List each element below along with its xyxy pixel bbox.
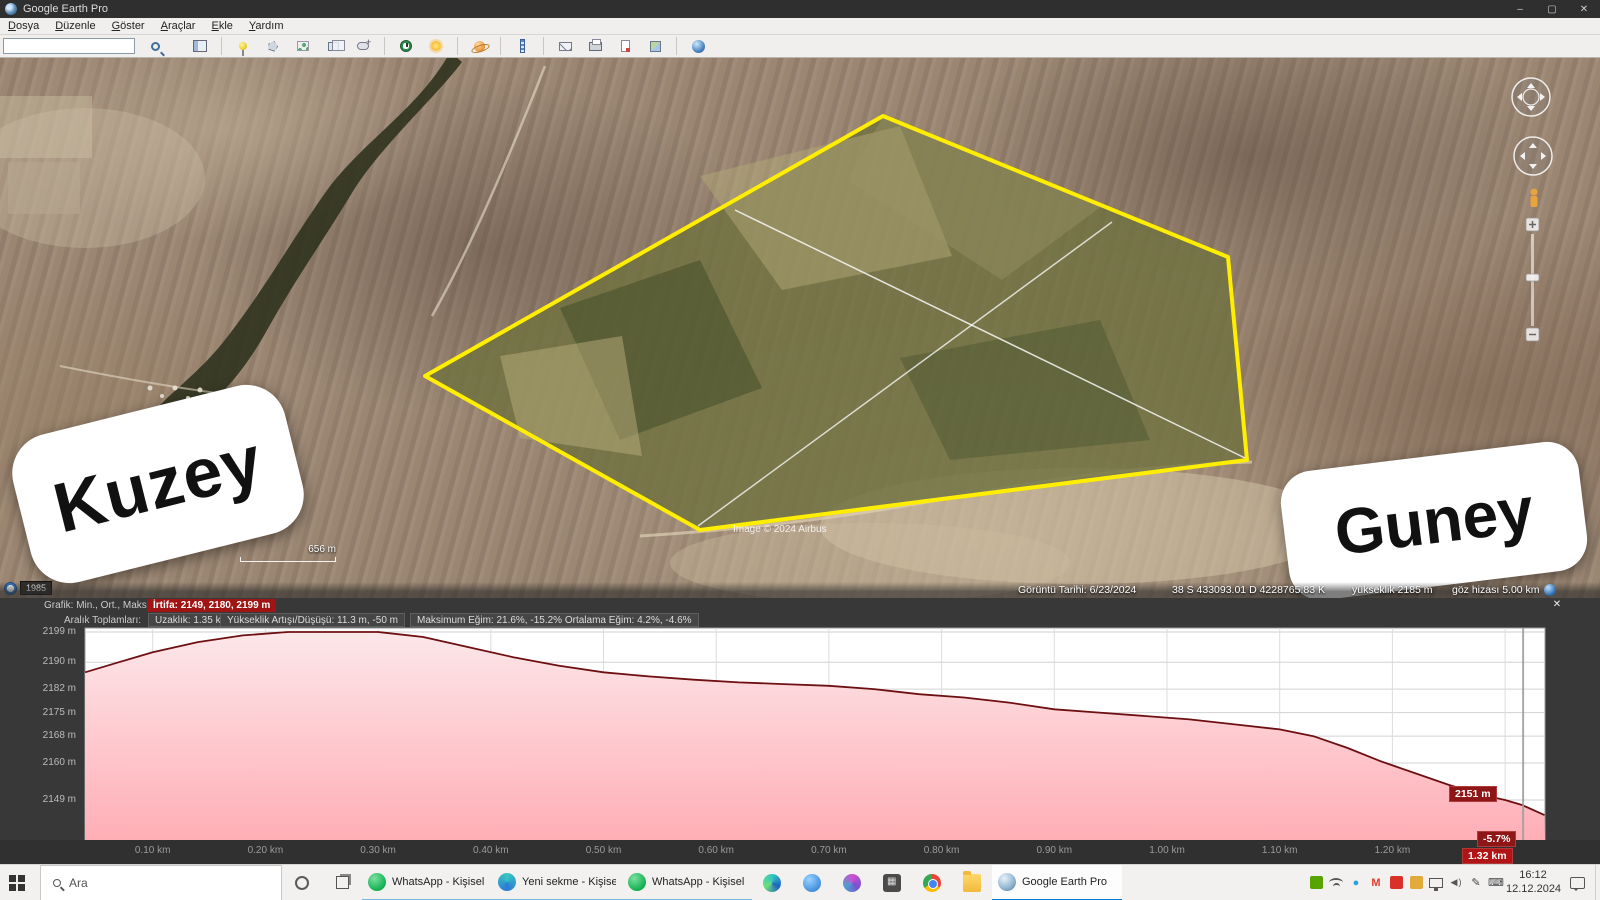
tray-blue-dot-icon[interactable]: ● [1346,865,1366,900]
print-icon [589,42,602,51]
taskbar-search-icon [53,879,61,887]
view-in-google-maps-button[interactable] [642,37,668,56]
menu-item-ekle[interactable]: Ekle [203,19,240,33]
folder-icon [963,874,981,892]
wifi-glyph [1329,878,1343,887]
planets-button[interactable] [466,37,492,56]
tray-wifi-icon[interactable] [1326,865,1346,900]
clock-date: 12.12.2024 [1506,883,1560,897]
eye-altitude: göz hizası 5.00 km [1452,584,1540,596]
window-title: Google Earth Pro [23,3,108,15]
cortana-icon [295,876,309,890]
app-icon [5,3,17,15]
keyboard-glyph: ⌨ [1488,876,1504,889]
taskbar-icon-edge[interactable] [752,865,792,900]
nvidia-glyph [1310,876,1323,889]
x-axis-tick: 0.40 km [461,845,521,856]
y-axis-tick: 2190 m [0,656,76,667]
add-placemark-icon [239,42,247,50]
map-view[interactable]: Image © 2024 Airbus Kuzey Guney 656 m 19… [0,58,1600,598]
card-glyph [1410,876,1423,889]
x-axis-tick: 1.20 km [1362,845,1422,856]
task-view-button[interactable] [322,865,362,900]
coordinates: 38 S 433093.01 D 4228765.83 K [1172,584,1325,596]
record-tour-button[interactable] [350,37,376,56]
taskbar-app-label: WhatsApp - Kişisel ... [652,876,746,888]
display-glyph [1429,878,1443,888]
gmail-glyph: M [1371,877,1380,889]
historical-imagery-button[interactable] [393,37,419,56]
taskbar-app-button[interactable]: WhatsApp - Kişisel ... [622,865,752,900]
y-axis-tick: 2199 m [0,626,76,637]
system-tray: ●M◀✎⌨ 16:12 12.12.2024 [1306,865,1600,900]
add-path-icon [297,41,309,51]
cursor-slope-tooltip: -5.7% [1477,831,1516,847]
profile-close-button[interactable]: ✕ [1549,599,1565,612]
sidebar-button[interactable] [187,37,213,56]
title-bar: Google Earth Pro – ▢ ✕ [0,0,1600,18]
earth-button[interactable] [685,37,711,56]
river-vegetation [152,58,462,430]
y-axis-tick: 2182 m [0,683,76,694]
show-desktop-button[interactable] [1595,865,1600,900]
whatsapp-icon [628,873,646,891]
menu-bar: DosyaDüzenleGösterAraçlarEkleYardım [0,18,1600,35]
taskbar-app-label: Google Earth Pro [1022,876,1107,888]
add-image-overlay-icon [328,42,339,51]
pegman-icon[interactable] [1531,189,1538,208]
cursor-elevation-tooltip: 2151 m [1449,786,1497,802]
taskbar-icon-paint[interactable] [832,865,872,900]
task-view-icon [336,876,349,889]
close-button[interactable]: ✕ [1568,0,1600,18]
blue-icon [803,874,821,892]
menu-item-düzenle[interactable]: Düzenle [47,19,103,33]
zoom-thumb[interactable] [1526,274,1539,281]
search-icon [151,42,160,51]
taskbar-app-button[interactable]: Yeni sekme - Kişisel... [492,865,622,900]
y-axis-tick: 2149 m [0,794,76,805]
search-input[interactable] [3,38,135,54]
menu-item-araçlar[interactable]: Araçlar [153,19,204,33]
earth-icon [692,40,705,53]
tray-volume-icon[interactable]: ◀ [1446,865,1466,900]
nav-controls[interactable] [1512,78,1552,341]
menu-item-yardım[interactable]: Yardım [241,19,292,33]
x-axis-tick: 0.70 km [799,845,859,856]
map-status-bar: Görüntü Tarihi: 6/23/2024 38 S 433093.01… [0,582,1600,598]
action-center-icon[interactable] [1570,877,1585,889]
y-axis-tick: 2175 m [0,707,76,718]
slope-totals: Maksimum Eğim: 21.6%, -15.2% Ortalama Eğ… [410,613,699,627]
record-tour-icon [357,42,369,50]
minimize-button[interactable]: – [1504,0,1536,18]
elevation-profile-panel: Grafik: Min., Ort., Maks. İrtifa: 2149, … [0,598,1600,864]
taskbar-app-label: WhatsApp - Kişisel ... [392,876,486,888]
x-axis-tick: 0.50 km [574,845,634,856]
tray-card-icon[interactable] [1406,865,1426,900]
adobe-glyph [1390,876,1403,889]
taskbar-icon-calc[interactable] [872,865,912,900]
taskbar-app-label: Yeni sekme - Kişisel... [522,876,616,888]
x-axis-tick: 1.00 km [1137,845,1197,856]
windows-logo-icon [9,875,16,882]
field-parcel [425,116,1247,530]
search-button[interactable] [142,37,168,56]
maximize-button[interactable]: ▢ [1536,0,1568,18]
y-axis-tick: 2160 m [0,757,76,768]
scale-text: 656 m [240,544,336,555]
taskbar-icon-blue[interactable] [792,865,832,900]
x-axis-tick: 0.60 km [686,845,746,856]
chrome-icon [923,874,941,892]
sidebar-icon [193,40,207,52]
historical-imagery-icon [400,40,412,52]
move-joystick[interactable] [1514,137,1552,175]
paint-icon [843,874,861,892]
taskbar-app-google-earth[interactable]: Google Earth Pro [992,865,1122,900]
save-image-button[interactable] [612,37,638,56]
sunlight-icon [431,41,441,51]
clock-time: 16:12 [1506,869,1560,883]
scale-line [240,557,336,562]
ruler-button[interactable] [509,37,535,56]
save-image-icon [621,40,630,52]
tray-nvidia-icon[interactable] [1306,865,1326,900]
totals-label: Aralık Toplamları: [64,615,141,626]
pen-glyph: ✎ [1471,876,1480,889]
whatsapp-icon [368,873,386,891]
windows-taskbar: Ara WhatsApp - Kişisel ...Yeni sekme - K… [0,864,1600,900]
scale-bar: 656 m [240,544,336,562]
tray-display-icon[interactable] [1426,865,1446,900]
planets-icon [474,41,485,52]
calc-icon [883,874,901,892]
volume-glyph: ◀ [1451,877,1462,888]
edge-icon [763,874,781,892]
menu-item-dosya[interactable]: Dosya [0,19,47,33]
graph-stats-label: Grafik: Min., Ort., Maks. [44,600,150,611]
add-polygon-icon [267,40,280,53]
x-axis-tick: 0.10 km [123,845,183,856]
streetview-globe-icon [1544,584,1556,596]
tray-keyboard-icon[interactable]: ⌨ [1486,865,1506,900]
edgetab-icon [498,873,516,891]
x-axis-tick: 1.10 km [1250,845,1310,856]
add-polygon-button[interactable] [260,37,286,56]
start-button[interactable] [0,865,40,900]
tray-adobe-icon[interactable] [1386,865,1406,900]
tray-gmail-icon[interactable]: M [1366,865,1386,900]
ruler-icon [520,39,525,53]
sunlight-button[interactable] [423,37,449,56]
toolbar [0,35,1600,58]
y-axis-tick: 2168 m [0,730,76,741]
taskbar-icon-folder[interactable] [952,865,992,900]
cortana-button[interactable] [282,865,322,900]
x-axis-tick: 0.90 km [1024,845,1084,856]
imagery-attribution: Image © 2024 Airbus [733,524,827,535]
taskbar-app-button[interactable]: WhatsApp - Kişisel ... [362,865,492,900]
imagery-date: Görüntü Tarihi: 6/23/2024 [1018,584,1136,596]
cursor-distance-tooltip: 1.32 km [1462,848,1513,864]
ge-icon [998,873,1016,891]
tray-pen-icon[interactable]: ✎ [1466,865,1486,900]
x-axis-tick: 0.30 km [348,845,408,856]
taskbar-icon-chrome[interactable] [912,865,952,900]
blue-dot-glyph: ● [1353,877,1360,889]
elevation-summary-badge: İrtifa: 2149, 2180, 2199 m [147,599,276,612]
view-in-google-maps-icon [650,41,661,52]
add-image-overlay-button[interactable] [320,37,346,56]
max-slope: Maksimum Eğim: 21.6%, -15.2% [417,615,562,626]
menu-item-göster[interactable]: Göster [104,19,153,33]
add-placemark-button[interactable] [230,37,256,56]
terrain-elevation: yükseklik 2185 m [1352,584,1433,596]
print-button[interactable] [582,37,608,56]
taskbar-clock[interactable]: 16:12 12.12.2024 [1506,869,1560,897]
google-earth-window: Google Earth Pro – ▢ ✕ DosyaDüzenleGöste… [0,0,1600,900]
add-path-button[interactable] [290,37,316,56]
zoom-slider[interactable] [1526,218,1539,341]
x-axis-tick: 0.20 km [235,845,295,856]
gain-loss-total: Yükseklik Artışı/Düşüşü: 11.3 m, -50 m [220,613,405,627]
taskbar-search-placeholder: Ara [69,876,88,890]
avg-slope: Ortalama Eğim: 4.2%, -4.6% [565,615,692,626]
email-icon [559,42,572,51]
elevation-chart[interactable] [0,598,1600,864]
x-axis-tick: 0.80 km [912,845,972,856]
email-button[interactable] [552,37,578,56]
taskbar-search[interactable]: Ara [40,865,282,900]
